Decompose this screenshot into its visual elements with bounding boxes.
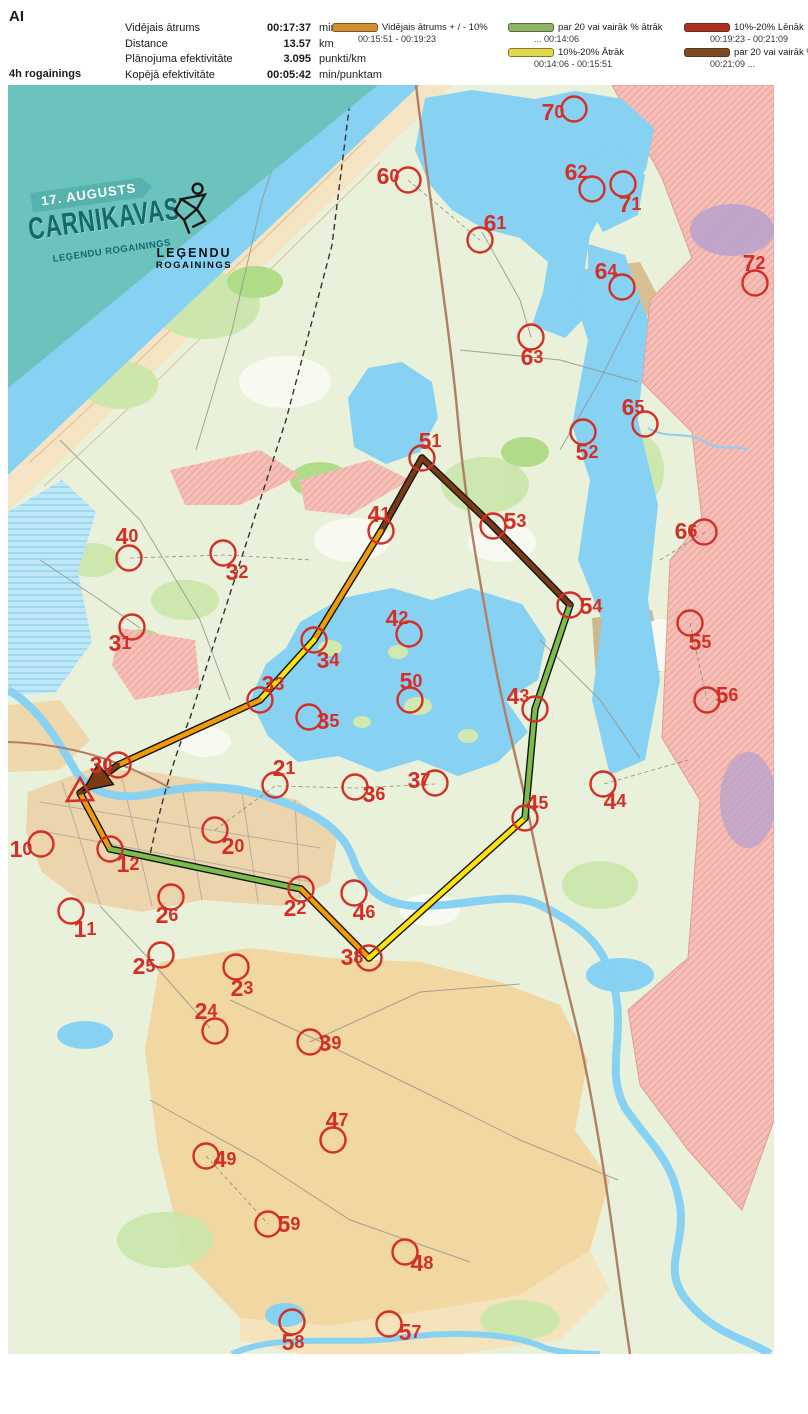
control-number-59: 59 bbox=[278, 1211, 301, 1237]
legend-range: 00:21:09 ... bbox=[684, 59, 808, 69]
control-number-33: 33 bbox=[262, 671, 285, 697]
control-number-40: 40 bbox=[116, 523, 139, 549]
control-number-10: 10 bbox=[10, 836, 33, 862]
control-number-50: 50 bbox=[400, 668, 423, 694]
control-number-64: 64 bbox=[595, 258, 618, 284]
control-number-22: 22 bbox=[284, 895, 307, 921]
control-number-26: 26 bbox=[156, 902, 179, 928]
control-number-32: 32 bbox=[226, 559, 249, 585]
legend-range: 00:19:23 - 00:21:09 bbox=[684, 34, 808, 44]
control-number-71: 71 bbox=[619, 191, 642, 217]
control-number-44: 44 bbox=[604, 788, 627, 814]
legend-label: par 20 vai vairāk % lēnāk bbox=[734, 47, 808, 58]
legend-swatch bbox=[684, 48, 730, 57]
legend-column: 10%-20% Lēnāk00:19:23 - 00:21:09par 20 v… bbox=[684, 22, 808, 72]
legend-label: 10%-20% Lēnāk bbox=[734, 22, 804, 33]
control-number-47: 47 bbox=[326, 1107, 349, 1133]
legend-swatch bbox=[508, 48, 554, 57]
rogaining-report-page: AI 4h rogainings Punkti: 42 03:59:06 Vid… bbox=[0, 0, 808, 1414]
control-number-58: 58 bbox=[282, 1329, 305, 1354]
control-number-12: 12 bbox=[117, 851, 140, 877]
control-number-66: 66 bbox=[675, 518, 698, 544]
route-map: 1011122021222324252630313233343536373839… bbox=[8, 85, 774, 1354]
control-number-55: 55 bbox=[689, 629, 712, 655]
control-number-72: 72 bbox=[743, 250, 766, 276]
control-number-62: 62 bbox=[565, 159, 588, 185]
page-title: AI bbox=[9, 8, 24, 25]
control-number-38: 38 bbox=[341, 944, 364, 970]
control-number-45: 45 bbox=[526, 790, 549, 816]
legend-column: Vidējais ātrums + / - 10%00:15:51 - 00:1… bbox=[332, 22, 482, 72]
control-number-56: 56 bbox=[716, 682, 739, 708]
control-number-49: 49 bbox=[214, 1146, 237, 1172]
legend-label: 10%-20% Ātrāk bbox=[558, 47, 624, 58]
control-number-42: 42 bbox=[386, 605, 409, 631]
control-number-23: 23 bbox=[231, 975, 254, 1001]
legend-item-slow10: 10%-20% Lēnāk00:19:23 - 00:21:09 bbox=[684, 22, 808, 44]
legend: Vidējais ātrums + / - 10%00:15:51 - 00:1… bbox=[332, 22, 808, 72]
control-number-30: 30 bbox=[90, 752, 113, 778]
legend-swatch bbox=[684, 23, 730, 32]
control-number-54: 54 bbox=[580, 593, 603, 619]
control-number-46: 46 bbox=[353, 899, 376, 925]
event-format: 4h rogainings bbox=[9, 67, 81, 83]
control-number-51: 51 bbox=[419, 428, 442, 454]
legend-item-slow20: par 20 vai vairāk % lēnāk00:21:09 ... bbox=[684, 47, 808, 69]
legend-label: Vidējais ātrums + / - 10% bbox=[382, 22, 488, 33]
legend-swatch bbox=[508, 23, 554, 32]
control-number-52: 52 bbox=[576, 439, 599, 465]
legend-range: ... 00:14:06 bbox=[508, 34, 658, 44]
report-header: AI 4h rogainings Punkti: 42 03:59:06 Vid… bbox=[0, 0, 808, 85]
legend-label: par 20 vai vairāk % ātrāk bbox=[558, 22, 663, 33]
control-number-60: 60 bbox=[377, 163, 400, 189]
legend-item-fast10: 10%-20% Ātrāk00:14:06 - 00:15:51 bbox=[508, 47, 658, 69]
control-number-70: 70 bbox=[542, 99, 565, 125]
control-number-43: 43 bbox=[507, 683, 530, 709]
legend-range: 00:14:06 - 00:15:51 bbox=[508, 59, 658, 69]
control-number-34: 34 bbox=[317, 647, 340, 673]
control-number-57: 57 bbox=[399, 1319, 422, 1345]
control-number-31: 31 bbox=[109, 630, 132, 656]
legend-item-fast20: par 20 vai vairāk % ātrāk... 00:14:06 bbox=[508, 22, 658, 44]
control-number-25: 25 bbox=[133, 953, 156, 979]
control-number-11: 11 bbox=[74, 916, 97, 942]
control-number-39: 39 bbox=[319, 1030, 342, 1056]
control-number-24: 24 bbox=[195, 998, 218, 1024]
control-number-53: 53 bbox=[504, 508, 527, 534]
control-number-21: 21 bbox=[273, 755, 296, 781]
control-number-41: 41 bbox=[368, 501, 391, 527]
control-number-65: 65 bbox=[622, 394, 645, 420]
control-number-48: 48 bbox=[411, 1250, 434, 1276]
legend-column: par 20 vai vairāk % ātrāk... 00:14:0610%… bbox=[508, 22, 658, 72]
legend-swatch bbox=[332, 23, 378, 32]
legend-item-avg: Vidējais ātrums + / - 10%00:15:51 - 00:1… bbox=[332, 22, 482, 44]
control-number-20: 20 bbox=[222, 833, 245, 859]
control-number-63: 63 bbox=[521, 344, 544, 370]
legend-range: 00:15:51 - 00:19:23 bbox=[332, 34, 482, 44]
control-number-61: 61 bbox=[484, 210, 507, 236]
control-number-36: 36 bbox=[363, 781, 386, 807]
control-number-37: 37 bbox=[408, 767, 431, 793]
control-number-35: 35 bbox=[317, 708, 340, 734]
